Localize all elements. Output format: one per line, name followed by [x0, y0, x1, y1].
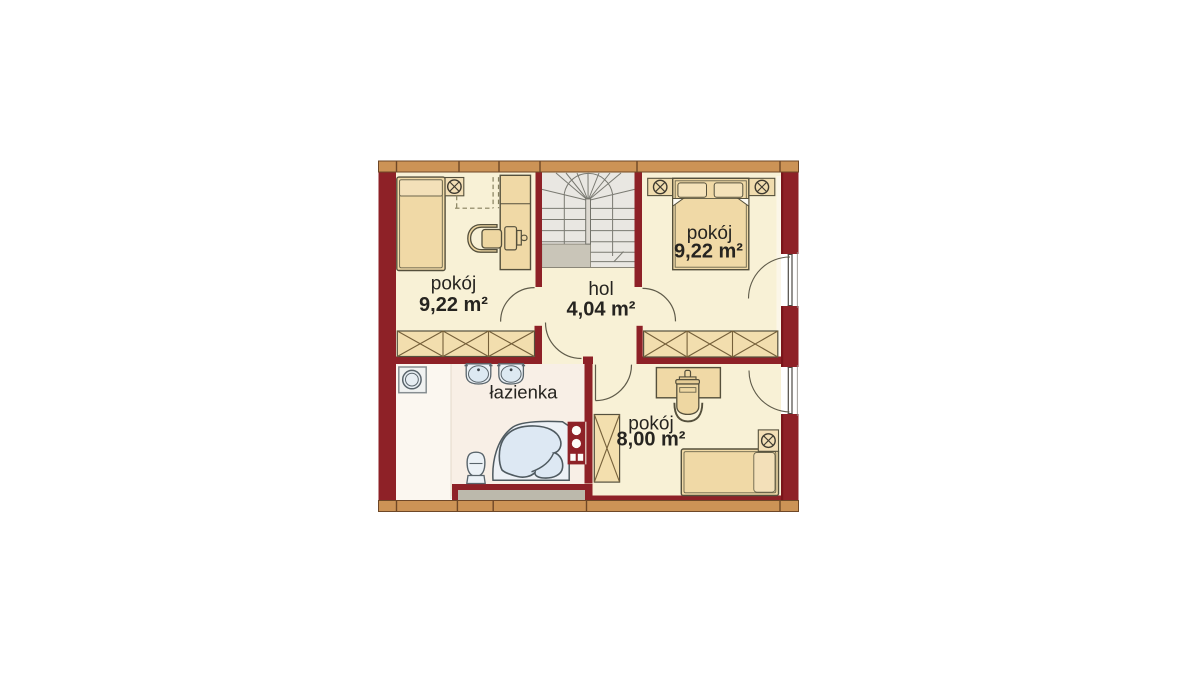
svg-text:hol: hol: [588, 279, 613, 300]
svg-text:łazienka: łazienka: [490, 382, 559, 403]
svg-text:8,00 m²: 8,00 m²: [617, 429, 686, 451]
svg-text:4,04 m²: 4,04 m²: [567, 299, 636, 321]
svg-text:9,22 m²: 9,22 m²: [419, 294, 488, 316]
svg-text:pokój: pokój: [431, 274, 476, 295]
svg-text:9,22 m²: 9,22 m²: [674, 241, 743, 263]
